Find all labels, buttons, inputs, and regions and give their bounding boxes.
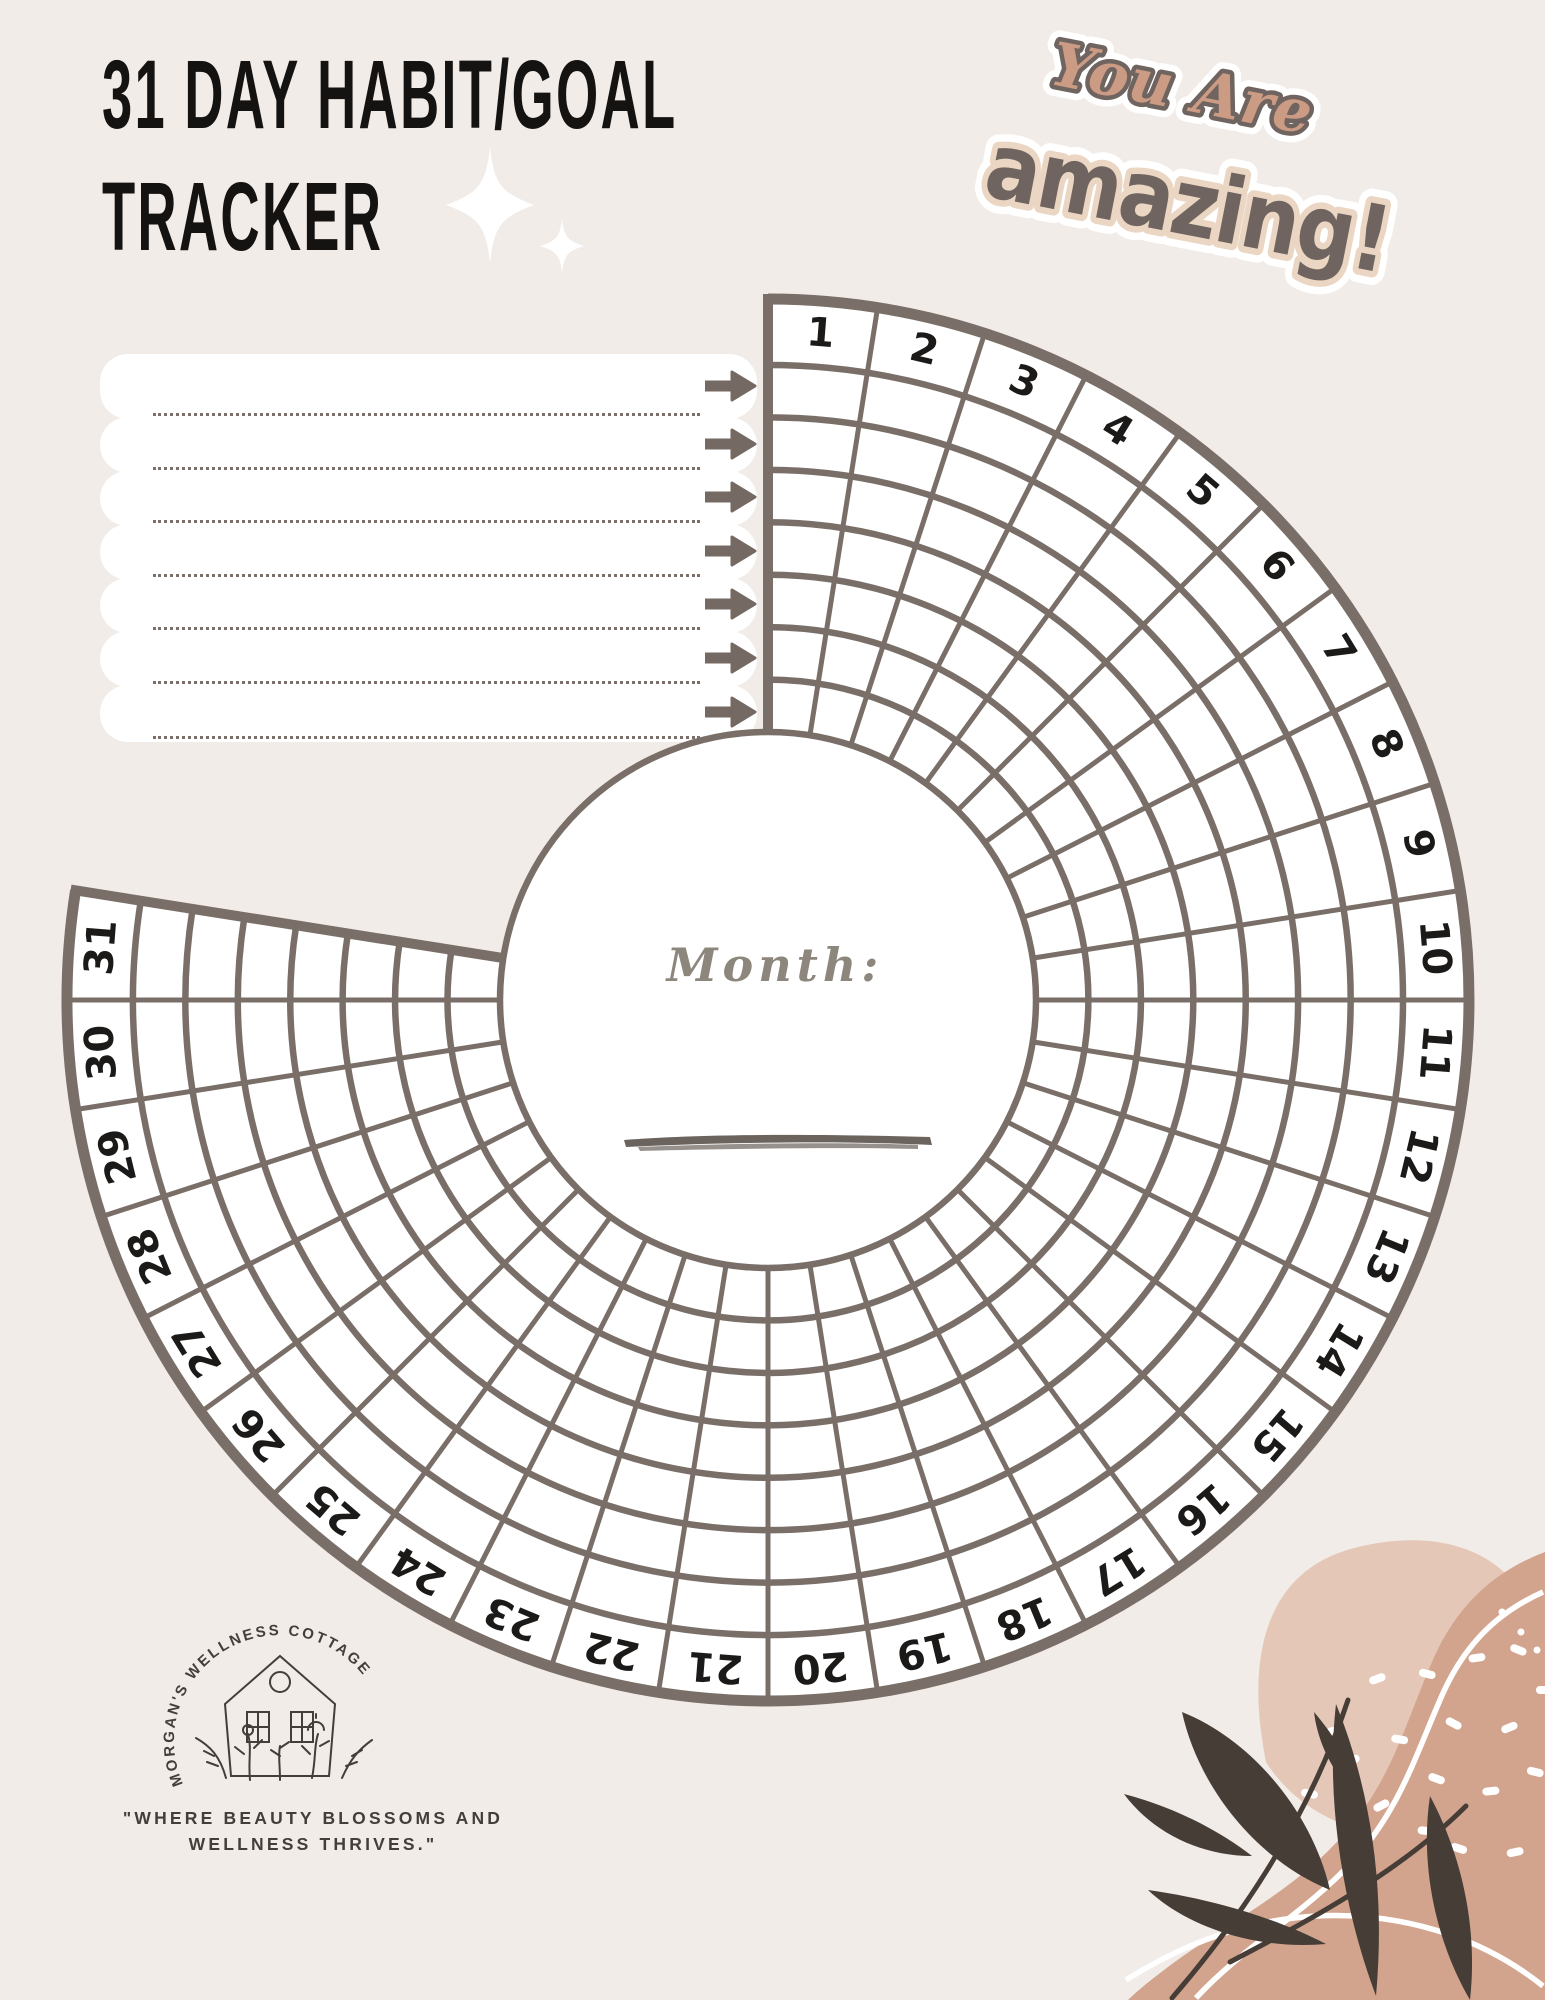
day-number-label[interactable]: 20 xyxy=(791,1642,850,1692)
day-number-label[interactable]: 11 xyxy=(1410,1023,1460,1082)
wellness-cottage-logo: MORGAN'S WELLNESS COTTAGE xyxy=(130,1588,450,1818)
day-number-label[interactable]: 1 xyxy=(805,309,836,357)
month-label: Month: xyxy=(575,938,975,992)
day-number-label[interactable]: 21 xyxy=(686,1642,745,1692)
logo-tagline-line1: "WHERE BEAUTY BLOSSOMS AND xyxy=(83,1808,543,1829)
sparkle-icon xyxy=(430,145,630,285)
day-number-label[interactable]: 30 xyxy=(76,1023,126,1082)
svg-text:MORGAN'S WELLNESS COTTAGE: MORGAN'S WELLNESS COTTAGE xyxy=(161,1622,375,1789)
month-center-circle xyxy=(500,732,1036,1268)
logo-botanicals xyxy=(196,1714,372,1780)
logo-arc-text: MORGAN'S WELLNESS COTTAGE xyxy=(161,1622,375,1789)
habit-tracker-page: 1234567891011121314151617181920212223242… xyxy=(0,0,1545,2000)
page-title-line1: 31 DAY HABIT/GOAL xyxy=(102,34,677,156)
month-underline[interactable] xyxy=(618,1126,942,1156)
logo-tagline-line2: WELLNESS THRIVES." xyxy=(83,1834,543,1855)
day-number-label[interactable]: 10 xyxy=(1410,918,1460,977)
day-number-label[interactable]: 31 xyxy=(76,918,126,977)
